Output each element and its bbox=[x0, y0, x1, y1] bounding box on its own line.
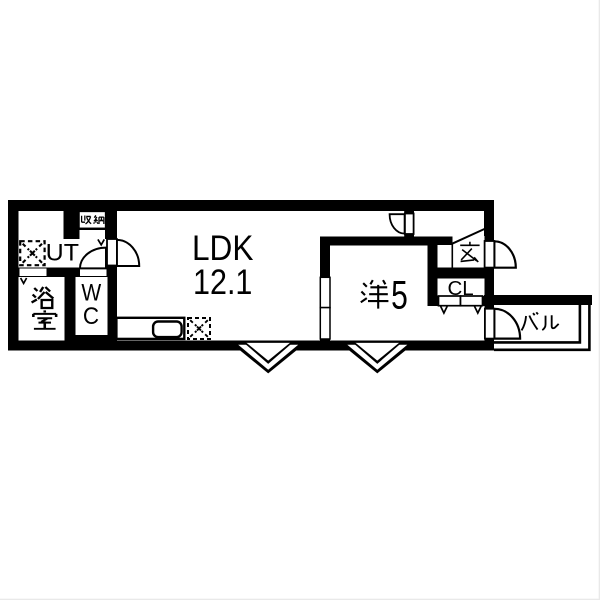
svg-text:12.1: 12.1 bbox=[193, 263, 252, 303]
svg-text:C: C bbox=[83, 302, 99, 329]
svg-text:CL: CL bbox=[447, 277, 473, 300]
svg-text:5: 5 bbox=[391, 273, 408, 317]
svg-text:UT: UT bbox=[46, 240, 79, 267]
